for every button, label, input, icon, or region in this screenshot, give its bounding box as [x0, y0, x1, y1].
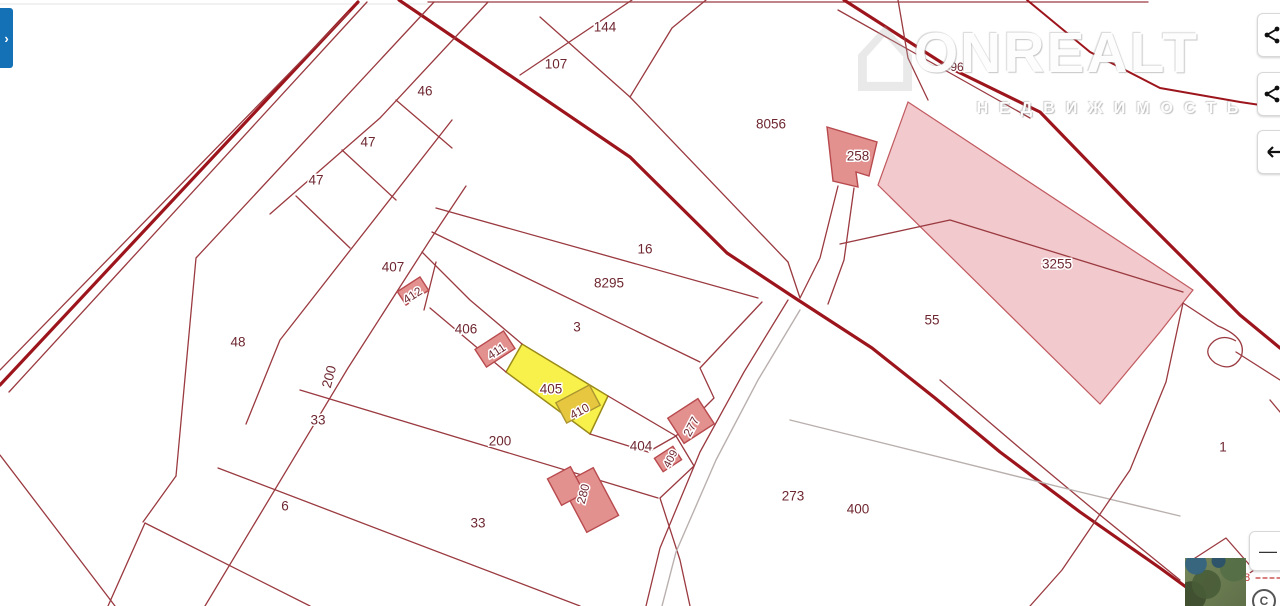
share-button-2[interactable]: [1257, 72, 1280, 116]
arrow-left-icon: [1263, 142, 1280, 162]
parcel-label: 400: [847, 502, 870, 517]
parcel-label: 3255: [1042, 257, 1072, 272]
parcel-label: 406: [455, 322, 478, 337]
parcel-label: 258: [847, 149, 870, 164]
parcel-label: 8056: [756, 117, 786, 132]
zoom-out-button[interactable]: —: [1249, 531, 1280, 571]
share-icon: [1263, 25, 1280, 45]
cadastral-map[interactable]: 1441074647478056258963255168295407412406…: [0, 0, 1280, 606]
back-button[interactable]: [1257, 130, 1280, 174]
parcel-label: 47: [308, 173, 323, 188]
parcel-label: 144: [594, 20, 617, 35]
parcel-label: 33: [470, 516, 485, 531]
parcel-label: 6: [281, 499, 289, 514]
parcel-label: 55: [924, 313, 939, 328]
minus-icon: —: [1259, 541, 1277, 562]
parcel-label: 96: [950, 60, 964, 74]
parcel-label: 47: [360, 135, 375, 150]
panel-expand-tab[interactable]: ›: [0, 8, 13, 68]
parcel-label: 273: [782, 489, 805, 504]
parcel-label: 48: [230, 335, 245, 350]
share-button[interactable]: [1257, 13, 1280, 57]
chevron-right-icon: ›: [4, 31, 8, 46]
share-icon: [1263, 84, 1280, 104]
parcel-label: 33: [310, 413, 325, 428]
parcel-label: 1: [1219, 440, 1227, 455]
parcel-label: 404: [630, 439, 653, 454]
parcel-label: 107: [545, 57, 568, 72]
minimap-thumbnail[interactable]: [1185, 558, 1246, 606]
parcel-label: 407: [382, 260, 405, 275]
parcel-label: 405: [540, 382, 563, 397]
parcel-label: 3: [573, 320, 581, 335]
parcel-label: 46: [417, 84, 432, 99]
parcel-label: 200: [489, 434, 512, 449]
parcel-label: 16: [637, 242, 652, 257]
parcel-label: 8295: [594, 276, 624, 291]
attribution-badge: C: [1252, 589, 1276, 606]
map-viewer: 1441074647478056258963255168295407412406…: [0, 0, 1280, 606]
